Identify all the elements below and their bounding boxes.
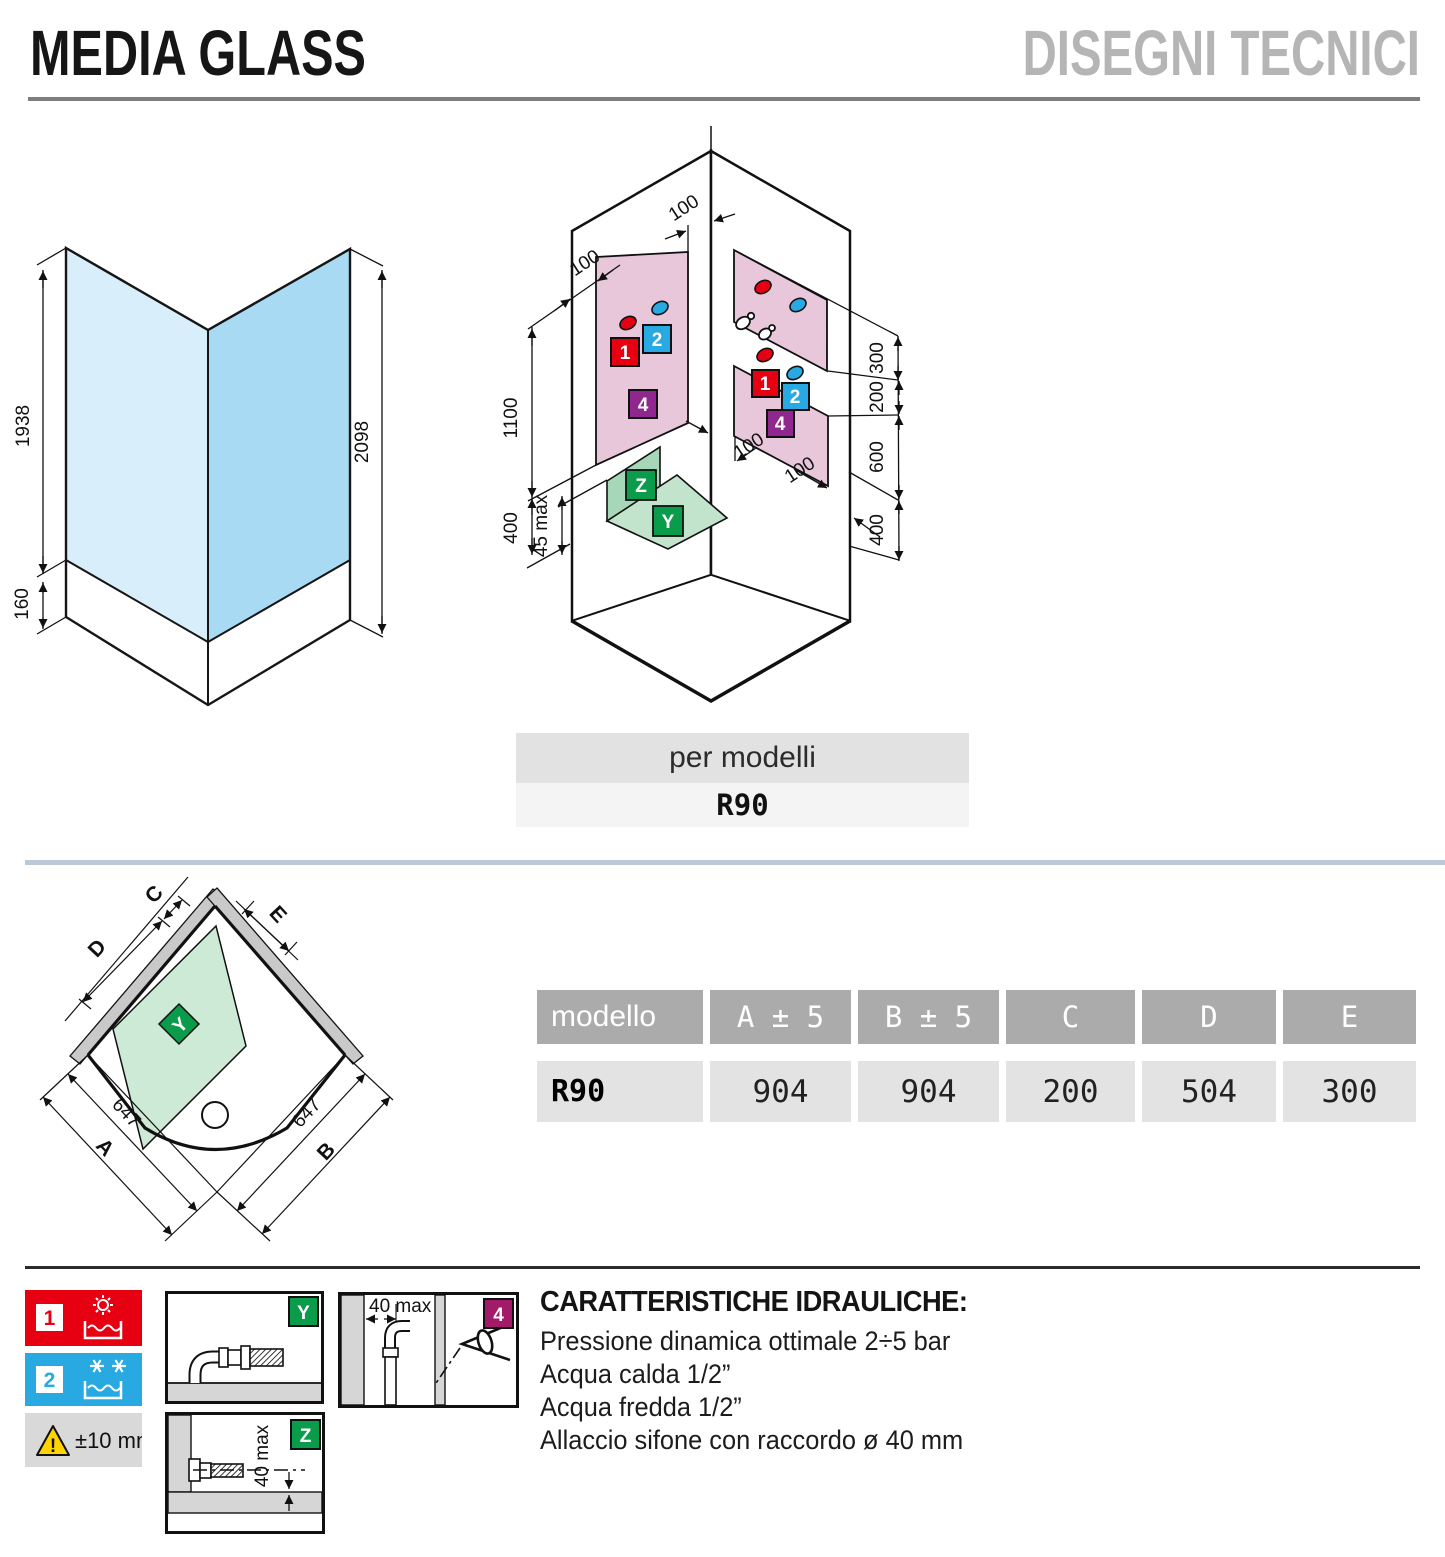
legend-tolerance-value: ±10 mm	[75, 1428, 142, 1453]
dim-right-400: 400	[867, 514, 888, 546]
svg-text:!: !	[50, 1436, 56, 1457]
cell-e: 300	[1283, 1061, 1416, 1122]
corner-installation-diagram: 1 2 4 1 2 4 Z Y	[480, 118, 960, 733]
dim-total-height: 2098	[352, 421, 373, 463]
dim-right-300: 300	[867, 342, 888, 374]
legend-hot-number: 1	[44, 1307, 56, 1330]
col-header-modello: modello	[537, 990, 703, 1044]
footer-divider	[25, 1266, 1420, 1269]
dim-glass-height: 1938	[13, 405, 34, 447]
dim-label-b: B	[313, 1138, 340, 1165]
col-header-a: A ± 5	[710, 990, 851, 1044]
section-divider	[25, 860, 1445, 865]
marker-inspection: 4	[775, 414, 786, 435]
marker-hot: 1	[760, 374, 771, 395]
legend-z-dim: 40 max	[252, 1424, 273, 1487]
hydraulics-line: Allaccio sifone con raccordo ø 40 mm	[540, 1424, 1123, 1457]
col-header-c: C	[1006, 990, 1135, 1044]
legend-wall-drain: 40 max Z	[165, 1412, 325, 1534]
dim-right-200: 200	[867, 381, 888, 413]
dim-tray-height: 45 max	[531, 494, 552, 557]
legend-inspection-number: 4	[493, 1305, 504, 1326]
legend-hot-water: 1	[25, 1290, 142, 1346]
glass-panels	[66, 248, 350, 705]
dim-base-height: 160	[12, 588, 33, 620]
hydraulics-line: Acqua fredda 1/2”	[540, 1391, 1123, 1424]
cell-b: 904	[858, 1061, 999, 1122]
page-title: MEDIA GLASS	[30, 16, 366, 90]
col-header-e: E	[1283, 990, 1416, 1044]
marker-cold: 2	[790, 387, 801, 408]
hydraulics-line: Acqua calda 1/2”	[540, 1358, 1123, 1391]
legend-floor-drain: Y	[165, 1291, 324, 1404]
dim-label-d: D	[84, 935, 111, 962]
dimensions-table: modello A ± 5 B ± 5 C D E R90 904 904 20…	[537, 990, 1424, 1122]
marker-hot: 1	[620, 343, 631, 364]
hydraulics-title: CARATTERISTICHE IDRAULICHE:	[540, 1286, 1123, 1319]
cell-c: 200	[1006, 1061, 1135, 1122]
dim-base-offset-left: 400	[501, 512, 522, 544]
legend-cold-water: 2	[25, 1353, 142, 1406]
legend-inspection: 40 max 4	[338, 1292, 519, 1408]
plan-view-diagram: Y	[30, 875, 460, 1285]
hydraulics-block: CARATTERISTICHE IDRAULICHE: Pressione di…	[540, 1286, 1123, 1457]
dim-label-c: C	[141, 881, 168, 908]
section-title: DISEGNI TECNICI	[1023, 16, 1420, 90]
cell-d: 504	[1142, 1061, 1276, 1122]
dim-label-e: E	[265, 902, 291, 928]
marker-cold: 2	[652, 330, 663, 351]
models-block: per modelli R90	[516, 733, 969, 827]
cell-model: R90	[537, 1061, 703, 1122]
models-label: per modelli	[516, 733, 969, 783]
marker-drain-floor: Y	[662, 512, 675, 533]
table-header-row: modello A ± 5 B ± 5 C D E	[537, 990, 1424, 1044]
col-header-b: B ± 5	[858, 990, 999, 1044]
legend-y-label: Y	[297, 1303, 310, 1324]
dim-label-a: A	[91, 1134, 118, 1161]
front-view-diagram: 1938 160 2098	[10, 230, 430, 710]
legend-tolerance: ! ±10 mm	[25, 1413, 142, 1467]
dim-panel-height: 1100	[501, 398, 522, 439]
legend-niche-dim: 40 max	[369, 1296, 432, 1317]
technical-sheet-page: MEDIA GLASS DISEGNI TECNICI 1938 1	[0, 0, 1445, 1557]
header-divider	[28, 97, 1420, 101]
models-value: R90	[516, 783, 969, 827]
cell-a: 904	[710, 1061, 851, 1122]
legend-z-label: Z	[300, 1426, 312, 1447]
legend-cold-number: 2	[44, 1369, 56, 1392]
dim-radius-right: 647	[288, 1094, 325, 1132]
col-header-d: D	[1142, 990, 1276, 1044]
table-row: R90 904 904 200 504 300	[537, 1061, 1424, 1122]
marker-inspection: 4	[638, 395, 649, 416]
hydraulics-line: Pressione dinamica ottimale 2÷5 bar	[540, 1325, 1123, 1358]
dim-right-600: 600	[867, 441, 888, 473]
marker-drain-wall: Z	[635, 476, 647, 497]
